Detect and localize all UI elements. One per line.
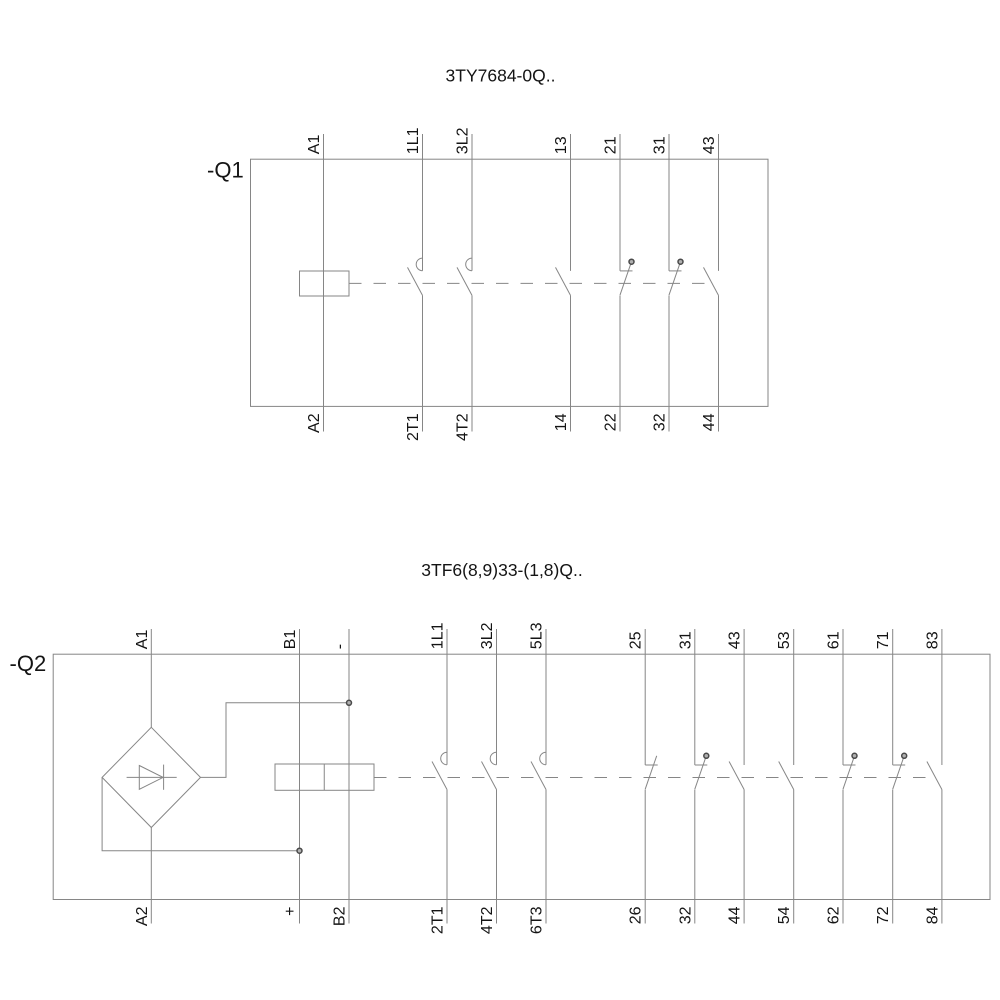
svg-text:B2: B2 — [332, 906, 349, 926]
svg-text:A2: A2 — [306, 413, 323, 433]
svg-text:32: 32 — [652, 413, 669, 431]
svg-text:43: 43 — [701, 136, 718, 154]
svg-text:54: 54 — [776, 906, 793, 924]
svg-text:1L1: 1L1 — [405, 127, 422, 154]
svg-text:4T2: 4T2 — [455, 413, 472, 441]
svg-text:84: 84 — [924, 906, 941, 924]
svg-text:44: 44 — [727, 906, 744, 924]
svg-text:1L1: 1L1 — [430, 622, 447, 649]
svg-text:-Q2: -Q2 — [10, 651, 47, 676]
svg-text:13: 13 — [553, 136, 570, 154]
svg-text:A2: A2 — [134, 906, 151, 926]
svg-text:5L3: 5L3 — [529, 622, 546, 649]
svg-text:62: 62 — [826, 906, 843, 924]
svg-text:43: 43 — [727, 631, 744, 649]
svg-text:72: 72 — [875, 906, 892, 924]
svg-text:83: 83 — [924, 631, 941, 649]
svg-text:31: 31 — [652, 136, 669, 154]
svg-text:61: 61 — [826, 631, 843, 649]
svg-text:B1: B1 — [282, 630, 299, 650]
svg-text:2T1: 2T1 — [430, 906, 447, 934]
svg-text:53: 53 — [776, 631, 793, 649]
svg-text:3TF6(8,9)33-(1,8)Q..: 3TF6(8,9)33-(1,8)Q.. — [421, 560, 582, 580]
svg-text:22: 22 — [603, 413, 620, 431]
svg-text:2T1: 2T1 — [405, 413, 422, 441]
svg-text:32: 32 — [677, 906, 694, 924]
svg-text:44: 44 — [701, 413, 718, 431]
svg-text:71: 71 — [875, 631, 892, 649]
svg-text:31: 31 — [677, 631, 694, 649]
svg-text:A1: A1 — [134, 630, 151, 650]
svg-text:25: 25 — [628, 631, 645, 649]
svg-text:3TY7684-0Q..: 3TY7684-0Q.. — [446, 66, 556, 86]
svg-text:26: 26 — [628, 906, 645, 924]
svg-text:+: + — [282, 907, 299, 916]
svg-text:21: 21 — [603, 136, 620, 154]
svg-text:4T2: 4T2 — [479, 906, 496, 934]
svg-text:3L2: 3L2 — [479, 622, 496, 649]
svg-text:A1: A1 — [306, 135, 323, 155]
svg-text:3L2: 3L2 — [455, 127, 472, 154]
svg-text:14: 14 — [553, 413, 570, 431]
svg-text:-Q1: -Q1 — [207, 158, 244, 183]
svg-text:6T3: 6T3 — [529, 906, 546, 934]
svg-text:-: - — [332, 644, 349, 649]
